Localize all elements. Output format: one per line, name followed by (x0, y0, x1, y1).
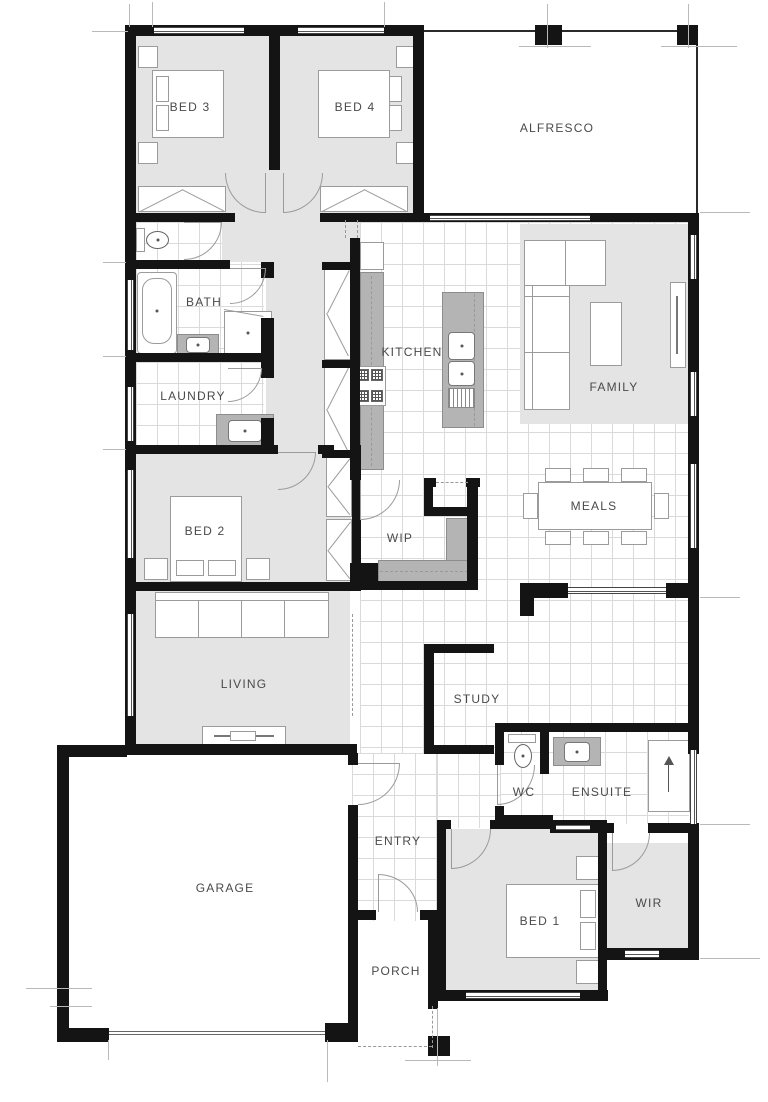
room-label-family: FAMILY (590, 380, 639, 394)
wall-garage (57, 745, 69, 1042)
wall-porch (428, 913, 438, 1009)
meals-chair (621, 468, 647, 482)
family-sofa-line (565, 240, 566, 286)
island-sink (448, 332, 475, 360)
wall (125, 445, 278, 454)
living-sofa (155, 592, 329, 638)
wall-garage (57, 1028, 109, 1042)
ensuite-sink (564, 742, 590, 762)
wall (125, 582, 354, 591)
family-coffee-table (590, 302, 622, 366)
living-opening-dashed (352, 614, 353, 716)
room-label-ensuite: ENSUITE (572, 785, 632, 799)
bed2-pillow (176, 560, 204, 576)
window-wir (625, 950, 659, 958)
porch-roof-dashed (358, 1046, 432, 1047)
living-sofa-line (198, 600, 199, 638)
wc-upper-toilet (146, 231, 169, 249)
wall-study (424, 644, 494, 653)
wall-garage (57, 745, 127, 757)
meals-chair (523, 493, 538, 519)
meals-chair (583, 531, 609, 545)
wall-study (424, 745, 494, 754)
dimension-tick (519, 46, 591, 47)
wall (666, 583, 699, 598)
living-sofa-line (155, 600, 329, 601)
wall (348, 753, 358, 765)
alfresco-column (535, 25, 562, 45)
wall (320, 213, 424, 222)
shower-arrow-head (664, 756, 674, 765)
wall (322, 360, 354, 368)
wall-wir (688, 833, 699, 960)
meals-chair (621, 531, 647, 545)
room-label-porch: PORCH (371, 964, 420, 978)
sliding-door-ensuite (556, 825, 590, 830)
dimension-tick (108, 1040, 109, 1060)
dimension-tick (103, 356, 126, 357)
window-bed4 (298, 27, 384, 34)
dimension-tick (152, 2, 153, 27)
bed3-side-table (138, 46, 158, 68)
wall (136, 260, 230, 269)
bed2-side-table (246, 558, 270, 580)
kitchen-fridge-space (360, 242, 384, 270)
floor-plan: BED 3 BED 4 ALFRESCO BATH LAUNDRY KITCHE… (0, 0, 768, 1102)
wall (322, 450, 354, 458)
window-laundry (127, 387, 134, 441)
wall (125, 213, 235, 222)
bed3-pillow (156, 76, 169, 102)
ensuite-shower (648, 740, 690, 812)
bed2-pillow (208, 560, 236, 576)
dimension-tick (327, 1040, 328, 1082)
window-meals-south (568, 587, 666, 594)
room-label-garage: GARAGE (196, 881, 255, 895)
bed3-side-table (138, 142, 158, 164)
wall-wip (467, 478, 478, 590)
room-label-alfresco: ALFRESCO (520, 121, 594, 135)
room-label-wir: WIR (636, 896, 663, 910)
window-meals (690, 464, 697, 548)
room-label-bed2: BED 2 (185, 524, 226, 538)
floor-entry-2 (437, 753, 500, 828)
room-label-bed3: BED 3 (170, 100, 211, 114)
wall-porch (356, 910, 376, 920)
dimension-tick (405, 1060, 471, 1061)
wall (540, 732, 549, 774)
living-tv-base (230, 731, 256, 741)
wall (350, 238, 360, 480)
dimension-tick (547, 4, 548, 48)
dimension-tick (700, 958, 760, 959)
wip-shelf-line (380, 571, 468, 572)
dimension-tick (26, 988, 92, 989)
window-bed1 (466, 992, 580, 999)
wc-cistern (508, 734, 536, 743)
wall (520, 583, 568, 598)
floor-bed2 (136, 452, 352, 582)
dimension-tick (129, 4, 130, 27)
wall-bed1 (437, 820, 446, 1001)
wall (261, 362, 274, 378)
bed2-side-table (144, 558, 168, 580)
bath-vanity-sink (186, 337, 210, 353)
cooktop-burner (371, 390, 383, 402)
wall (495, 723, 699, 732)
room-label-meals: MEALS (571, 499, 618, 513)
garage-door (109, 1031, 325, 1035)
bulkhead-dashed (345, 220, 346, 238)
bed3-pillow (156, 105, 169, 131)
wall-garage (325, 1023, 358, 1042)
cooktop-burner (371, 369, 383, 381)
bed1-pillow (580, 890, 596, 918)
dimension-tick (700, 824, 750, 825)
wall (648, 823, 699, 833)
dimension-tick (384, 2, 385, 27)
wall (350, 563, 378, 590)
bathtub-inner (142, 278, 172, 344)
living-sofa-line (241, 600, 242, 638)
window-alfresco-door (430, 215, 510, 221)
meals-chair (583, 468, 609, 482)
dimension-tick (700, 212, 750, 213)
room-label-wip: WIP (387, 531, 413, 545)
room-label-kitchen: KITCHEN (381, 345, 442, 359)
bed2-robe (326, 519, 352, 581)
bed1-pillow (580, 922, 596, 950)
dimension-tick (437, 1008, 438, 1066)
wc-upper-cistern (136, 228, 145, 252)
bed1-side-table (576, 960, 600, 984)
living-sofa-line (284, 600, 285, 638)
door-leaf-bed3 (265, 173, 266, 213)
room-label-living: LIVING (221, 677, 268, 691)
wall-wip (424, 478, 436, 487)
room-label-bath: BATH (186, 295, 222, 309)
family-tv (676, 296, 678, 354)
island-sink (448, 361, 475, 386)
dimension-tick (661, 46, 737, 47)
window-bath (127, 280, 134, 350)
meals-chair (545, 468, 571, 482)
room-label-laundry: LAUNDRY (160, 389, 226, 403)
island-drainer (448, 388, 475, 408)
dimension-tick (103, 262, 126, 263)
window-bed3 (154, 27, 244, 34)
wall (322, 262, 354, 270)
porch-roof-dashed (432, 1006, 433, 1048)
alfresco-edge-right (696, 30, 698, 214)
room-label-entry: ENTRY (375, 834, 421, 848)
bed2-robe (326, 455, 352, 517)
dimension-tick (50, 1006, 92, 1007)
meals-chair (545, 531, 571, 545)
laundry-trough (228, 420, 262, 442)
wall (125, 744, 357, 755)
room-label-wc: WC (513, 785, 535, 799)
window-family (690, 235, 697, 279)
dimension-tick (92, 31, 128, 32)
window-living (127, 614, 134, 716)
wall (495, 723, 504, 765)
wall-wip (378, 581, 478, 590)
wip-bench (446, 518, 469, 564)
dimension-tick (688, 4, 689, 48)
bulkhead-dashed (357, 220, 358, 238)
family-tv-unit (670, 282, 686, 368)
wall-bed1 (598, 823, 607, 995)
wall (520, 598, 534, 616)
bed4-pillow (389, 76, 402, 102)
room-label-study: STUDY (454, 692, 501, 706)
wall (269, 36, 280, 170)
wall (125, 353, 274, 362)
window-family (690, 372, 697, 416)
dimension-tick (103, 449, 126, 450)
window-family-top (508, 215, 590, 221)
dimension-tick (700, 597, 740, 598)
bed1-side-table (576, 856, 600, 880)
room-label-bed4: BED 4 (335, 100, 376, 114)
window-ensuite (690, 750, 697, 824)
wall-study (424, 644, 434, 754)
wip-opening-dashed (436, 482, 468, 483)
wall (413, 25, 424, 222)
shower-arrow-stem (668, 764, 669, 792)
window-bed2 (127, 470, 134, 558)
meals-chair (654, 493, 669, 519)
bed4-pillow (389, 105, 402, 131)
family-sofa-line (524, 352, 570, 353)
room-label-bed1: BED 1 (520, 914, 561, 928)
family-sofa-line (524, 296, 570, 297)
